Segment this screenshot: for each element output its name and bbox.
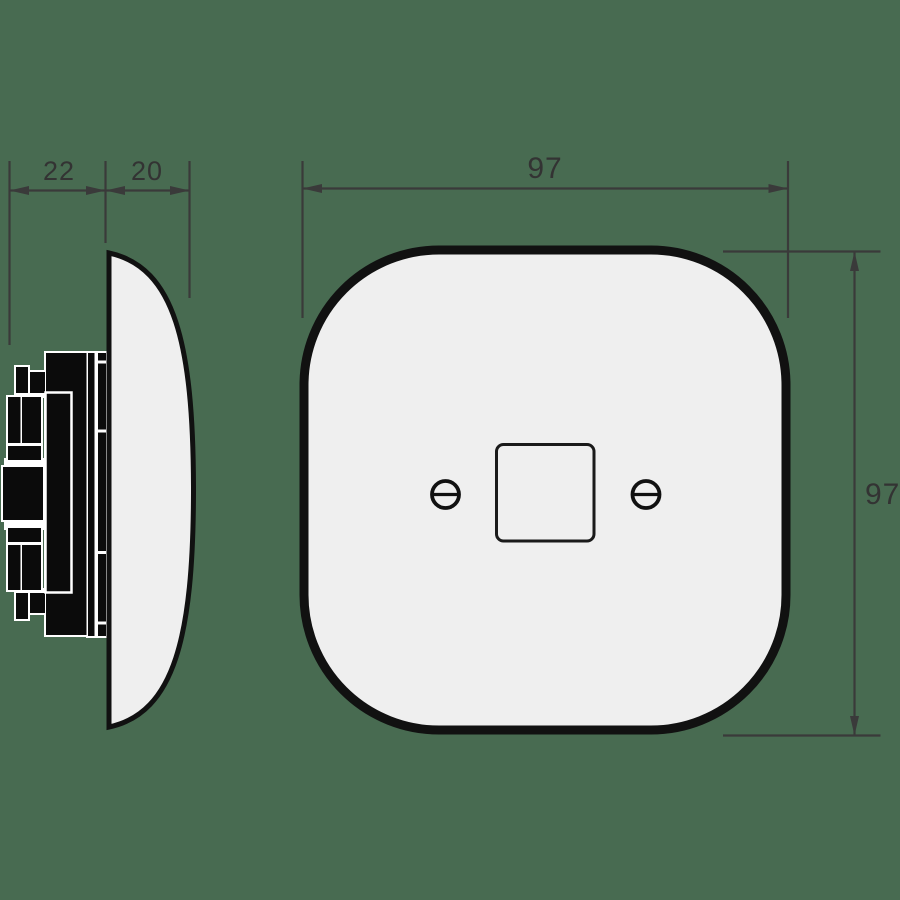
drawing-stage: 22 20 97 97 xyxy=(0,0,900,900)
screw-right xyxy=(633,481,660,508)
dim-label-depth-mechanism: 22 xyxy=(43,156,75,186)
dim-label-width: 97 xyxy=(527,152,562,185)
dim-label-height: 97 xyxy=(865,478,900,511)
center-aperture xyxy=(497,445,595,542)
dimension-drawing-canvas: 22 20 97 97 xyxy=(0,0,900,900)
dim-label-depth-cover: 20 xyxy=(131,156,163,186)
screw-left xyxy=(432,481,459,508)
front-view xyxy=(304,250,786,730)
